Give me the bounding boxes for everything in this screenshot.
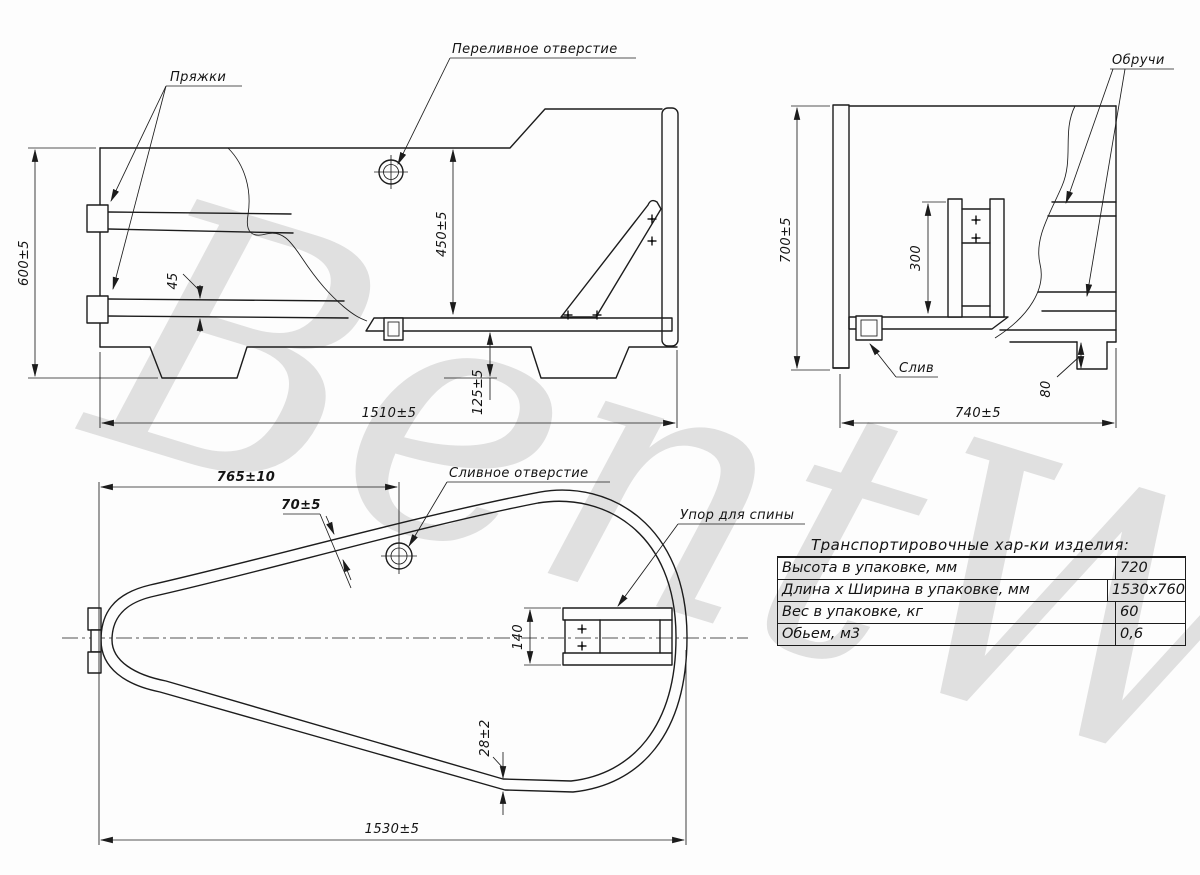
dim-70-text: 70±5 bbox=[281, 498, 321, 513]
end-break-line bbox=[995, 106, 1075, 338]
buckle-lower bbox=[87, 296, 108, 323]
dim-125-text: 125±5 bbox=[471, 369, 486, 415]
drain-fitting bbox=[384, 318, 403, 340]
spec-row-value: 0,6 bbox=[1115, 624, 1185, 645]
dim-765-text: 765±10 bbox=[217, 470, 276, 485]
drain-label: Слив bbox=[899, 361, 934, 376]
spec-row-value: 1530х760 bbox=[1107, 580, 1185, 601]
spec-row-label: Высота в упаковке, мм bbox=[778, 558, 1115, 579]
drawing-sheet: BentWood bbox=[0, 0, 1200, 875]
dim-450-text: 450±5 bbox=[435, 211, 450, 257]
buckles-label: Пряжки bbox=[170, 70, 226, 85]
dim-80-text: 80 bbox=[1039, 380, 1054, 397]
table-row: Высота в упаковке, мм 720 bbox=[778, 558, 1185, 579]
dim-300: 300 bbox=[909, 202, 946, 313]
dim-28-text: 28±2 bbox=[478, 719, 493, 756]
hoops-label: Обручи bbox=[1112, 53, 1165, 68]
spec-row-label: Вес в упаковке, кг bbox=[778, 602, 1115, 623]
spec-row-value: 720 bbox=[1115, 558, 1185, 579]
table-row: Обьем, м3 0,6 bbox=[778, 623, 1185, 645]
table-row: Длина х Ширина в упаковке, мм 1530х760 bbox=[778, 579, 1185, 601]
dim-1530-text: 1530±5 bbox=[365, 822, 420, 837]
dim-600-text: 600±5 bbox=[17, 240, 32, 286]
buckle-upper bbox=[87, 205, 108, 232]
spec-row-label: Обьем, м3 bbox=[778, 624, 1115, 645]
dim-28: 28±2 bbox=[478, 719, 503, 815]
dim-740-text: 740±5 bbox=[955, 406, 1001, 421]
dim-700-text: 700±5 bbox=[779, 217, 794, 263]
transport-spec-table: Транспортировочные хар-ки изделия: Высот… bbox=[777, 536, 1186, 646]
hoop-bands bbox=[1038, 202, 1116, 311]
overflow-label: Переливное отверстие bbox=[452, 42, 618, 57]
back-support-label: Упор для спины bbox=[680, 508, 794, 523]
spec-row-label: Длина х Ширина в упаковке, мм bbox=[778, 580, 1107, 601]
spec-row-value: 60 bbox=[1115, 602, 1185, 623]
dim-45-text: 45 bbox=[166, 272, 181, 289]
overflow-callout: Переливное отверстие bbox=[398, 42, 636, 164]
spec-table-title: Транспортировочные хар-ки изделия: bbox=[777, 536, 1186, 557]
dim-1510-text: 1510±5 bbox=[362, 406, 417, 421]
end-drain bbox=[856, 316, 882, 340]
table-row: Вес в упаковке, кг 60 bbox=[778, 601, 1185, 623]
end-foot bbox=[1077, 342, 1107, 369]
dim-140-text: 140 bbox=[511, 624, 526, 650]
dim-300-text: 300 bbox=[909, 245, 924, 271]
hoops-callout: Обручи bbox=[1066, 53, 1174, 296]
drain-hole-label: Сливное отверстие bbox=[449, 466, 589, 481]
